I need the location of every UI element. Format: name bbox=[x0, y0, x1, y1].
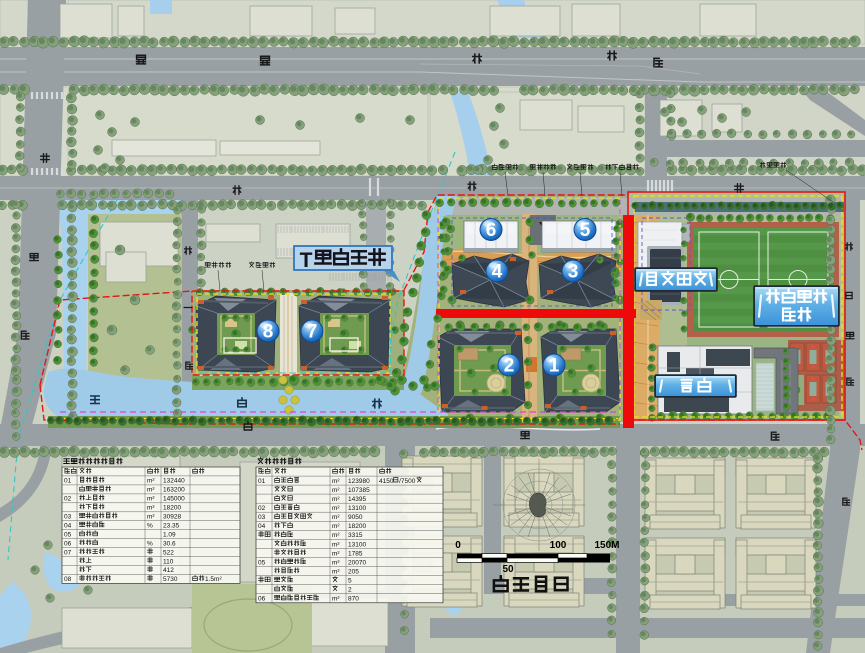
svg-text:5: 5 bbox=[348, 577, 352, 584]
svg-text:9050: 9050 bbox=[348, 514, 363, 521]
svg-text:08: 08 bbox=[64, 576, 72, 583]
svg-text:m²: m² bbox=[147, 505, 155, 512]
svg-text:107385: 107385 bbox=[348, 487, 370, 494]
svg-text:m²: m² bbox=[332, 550, 340, 557]
svg-text:m²: m² bbox=[147, 514, 155, 521]
svg-text:3: 3 bbox=[568, 262, 579, 283]
svg-text:205: 205 bbox=[348, 568, 359, 575]
svg-text:02: 02 bbox=[258, 505, 266, 512]
svg-text:m²: m² bbox=[332, 505, 340, 512]
svg-text:5: 5 bbox=[580, 220, 591, 241]
svg-text:163200: 163200 bbox=[163, 487, 185, 494]
svg-text:412: 412 bbox=[163, 567, 174, 574]
svg-text:13100: 13100 bbox=[348, 541, 366, 548]
svg-text:m²: m² bbox=[332, 478, 340, 485]
svg-text:1.09: 1.09 bbox=[163, 531, 176, 538]
svg-text:03: 03 bbox=[258, 514, 266, 521]
svg-text:m²: m² bbox=[332, 514, 340, 521]
svg-text:m²: m² bbox=[332, 559, 340, 566]
svg-text:01: 01 bbox=[258, 478, 266, 485]
svg-text:2: 2 bbox=[348, 587, 352, 594]
svg-text:m²: m² bbox=[147, 487, 155, 494]
svg-text:T: T bbox=[300, 249, 313, 272]
svg-text:110: 110 bbox=[163, 558, 174, 565]
svg-text:m²: m² bbox=[147, 496, 155, 503]
svg-text:6: 6 bbox=[486, 220, 497, 241]
svg-text:1785: 1785 bbox=[348, 550, 363, 557]
svg-text:3315: 3315 bbox=[348, 532, 363, 539]
svg-text:/7500: /7500 bbox=[399, 478, 416, 485]
svg-text:132440: 132440 bbox=[163, 478, 185, 485]
svg-text:01: 01 bbox=[64, 478, 72, 485]
svg-text:522: 522 bbox=[163, 549, 174, 556]
svg-text:%: % bbox=[147, 522, 153, 529]
svg-text:%: % bbox=[147, 540, 153, 547]
svg-text:06: 06 bbox=[258, 596, 266, 603]
svg-text:m²: m² bbox=[147, 478, 155, 485]
svg-text:m²: m² bbox=[332, 596, 340, 603]
svg-text:03: 03 bbox=[64, 514, 72, 521]
svg-text:07: 07 bbox=[64, 549, 72, 556]
svg-text:04: 04 bbox=[64, 522, 72, 529]
svg-text:m²: m² bbox=[332, 532, 340, 539]
svg-text:4150: 4150 bbox=[379, 478, 394, 485]
svg-text:123980: 123980 bbox=[348, 478, 370, 485]
svg-text:13100: 13100 bbox=[348, 505, 366, 512]
svg-text:30928: 30928 bbox=[163, 514, 181, 521]
svg-text:20070: 20070 bbox=[348, 559, 366, 566]
svg-text:05: 05 bbox=[258, 559, 266, 566]
svg-text:18200: 18200 bbox=[163, 505, 181, 512]
svg-text:m²: m² bbox=[332, 496, 340, 503]
svg-text:5730: 5730 bbox=[163, 576, 178, 583]
svg-text:m²: m² bbox=[332, 487, 340, 494]
svg-text:0: 0 bbox=[455, 540, 461, 551]
svg-text:05: 05 bbox=[64, 531, 72, 538]
svg-text:30.6: 30.6 bbox=[163, 540, 176, 547]
svg-text:18200: 18200 bbox=[348, 523, 366, 530]
svg-text:8: 8 bbox=[263, 322, 274, 343]
svg-text:23.35: 23.35 bbox=[163, 522, 180, 529]
svg-text:14395: 14395 bbox=[348, 496, 366, 503]
svg-text:7: 7 bbox=[307, 322, 318, 343]
svg-text:02: 02 bbox=[64, 496, 72, 503]
svg-text:2: 2 bbox=[504, 356, 515, 377]
svg-text:4: 4 bbox=[492, 262, 503, 283]
svg-text:m²: m² bbox=[332, 568, 340, 575]
svg-text:50: 50 bbox=[502, 564, 514, 575]
svg-text:870: 870 bbox=[348, 596, 359, 603]
svg-text:m²: m² bbox=[332, 541, 340, 548]
svg-text:100: 100 bbox=[550, 540, 567, 551]
svg-text:04: 04 bbox=[258, 523, 266, 530]
svg-text:145000: 145000 bbox=[163, 496, 185, 503]
svg-text:1.5m²: 1.5m² bbox=[205, 576, 222, 583]
svg-text:150M: 150M bbox=[594, 540, 619, 551]
svg-text:1: 1 bbox=[549, 356, 560, 377]
svg-text:m²: m² bbox=[332, 523, 340, 530]
svg-text:06: 06 bbox=[64, 540, 72, 547]
